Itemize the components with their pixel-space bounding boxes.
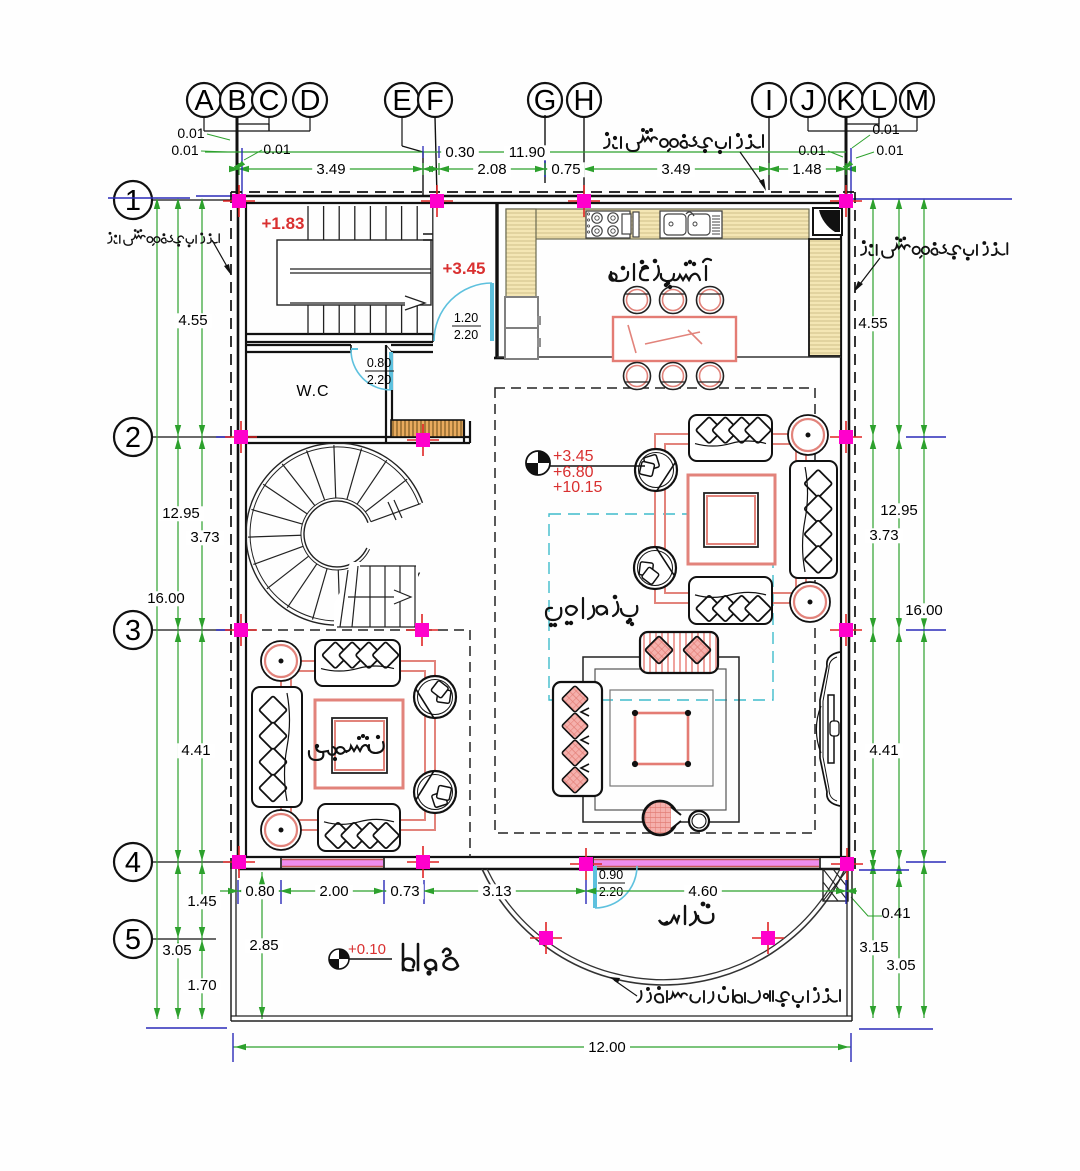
svg-text:E: E <box>392 85 411 117</box>
svg-text:4.41: 4.41 <box>181 742 210 759</box>
svg-text:D: D <box>300 85 321 117</box>
svg-text:A: A <box>194 85 214 117</box>
svg-text:4: 4 <box>125 847 141 879</box>
svg-text:3.73: 3.73 <box>869 527 898 544</box>
svg-text:0.01: 0.01 <box>798 142 825 158</box>
svg-text:J: J <box>801 85 816 117</box>
svg-text:4.55: 4.55 <box>858 315 887 332</box>
svg-text:2.00: 2.00 <box>319 883 348 900</box>
svg-text:+0.10: +0.10 <box>348 941 386 958</box>
svg-text:2.20: 2.20 <box>599 885 623 899</box>
svg-text:3: 3 <box>125 615 141 647</box>
svg-text:0.01: 0.01 <box>876 142 903 158</box>
svg-text:1.70: 1.70 <box>187 977 216 994</box>
svg-text:0.01: 0.01 <box>177 125 204 141</box>
svg-text:L: L <box>871 85 887 117</box>
svg-text:0.01: 0.01 <box>263 141 290 157</box>
svg-text:4.55: 4.55 <box>178 312 207 329</box>
svg-text:2.20: 2.20 <box>454 328 478 342</box>
svg-text:B: B <box>227 85 246 117</box>
svg-text:3.05: 3.05 <box>162 942 191 959</box>
svg-text:I: I <box>765 85 773 117</box>
svg-text:0.73: 0.73 <box>390 883 419 900</box>
svg-text:3.49: 3.49 <box>661 161 690 178</box>
svg-text:0.41: 0.41 <box>881 905 910 922</box>
svg-text:G: G <box>534 85 557 117</box>
svg-text:3.05: 3.05 <box>886 957 915 974</box>
svg-text:0.80: 0.80 <box>367 356 391 370</box>
svg-text:W.C: W.C <box>296 383 329 400</box>
svg-text:+10.15: +10.15 <box>553 479 602 496</box>
svg-text:12.95: 12.95 <box>880 502 918 519</box>
svg-text:1.48: 1.48 <box>792 161 821 178</box>
svg-text:12.95: 12.95 <box>162 505 200 522</box>
svg-text:+1.83: +1.83 <box>261 214 304 233</box>
svg-text:+3.45: +3.45 <box>442 259 485 278</box>
svg-text:1: 1 <box>125 185 141 217</box>
svg-text:K: K <box>836 85 856 117</box>
svg-text:2.85: 2.85 <box>249 937 278 954</box>
svg-text:0.80: 0.80 <box>245 883 274 900</box>
svg-text:2.20: 2.20 <box>367 373 391 387</box>
svg-text:C: C <box>259 85 280 117</box>
svg-text:3.49: 3.49 <box>316 161 345 178</box>
svg-text:1.20: 1.20 <box>454 311 478 325</box>
svg-text:0.30: 0.30 <box>445 144 474 161</box>
svg-text:12.00: 12.00 <box>588 1039 626 1056</box>
svg-text:0.01: 0.01 <box>171 142 198 158</box>
svg-text:2.08: 2.08 <box>477 161 506 178</box>
svg-text:1.45: 1.45 <box>187 893 216 910</box>
svg-text:3.15: 3.15 <box>859 939 888 956</box>
svg-text:0.75: 0.75 <box>551 161 580 178</box>
svg-text:5: 5 <box>125 924 141 956</box>
svg-text:4.60: 4.60 <box>688 883 717 900</box>
svg-text:2: 2 <box>125 422 141 454</box>
svg-text:11.90: 11.90 <box>509 144 545 161</box>
svg-text:+3.45: +3.45 <box>553 448 594 465</box>
svg-text:0.90: 0.90 <box>599 868 623 882</box>
svg-text:F: F <box>426 85 444 117</box>
svg-text:0.01: 0.01 <box>872 121 899 137</box>
svg-text:16.00: 16.00 <box>147 590 185 607</box>
svg-text:H: H <box>574 85 595 117</box>
svg-text:16.00: 16.00 <box>905 602 943 619</box>
svg-text:3.73: 3.73 <box>190 529 219 546</box>
svg-text:M: M <box>905 85 929 117</box>
svg-text:4.41: 4.41 <box>869 742 898 759</box>
svg-text:3.13: 3.13 <box>482 883 511 900</box>
